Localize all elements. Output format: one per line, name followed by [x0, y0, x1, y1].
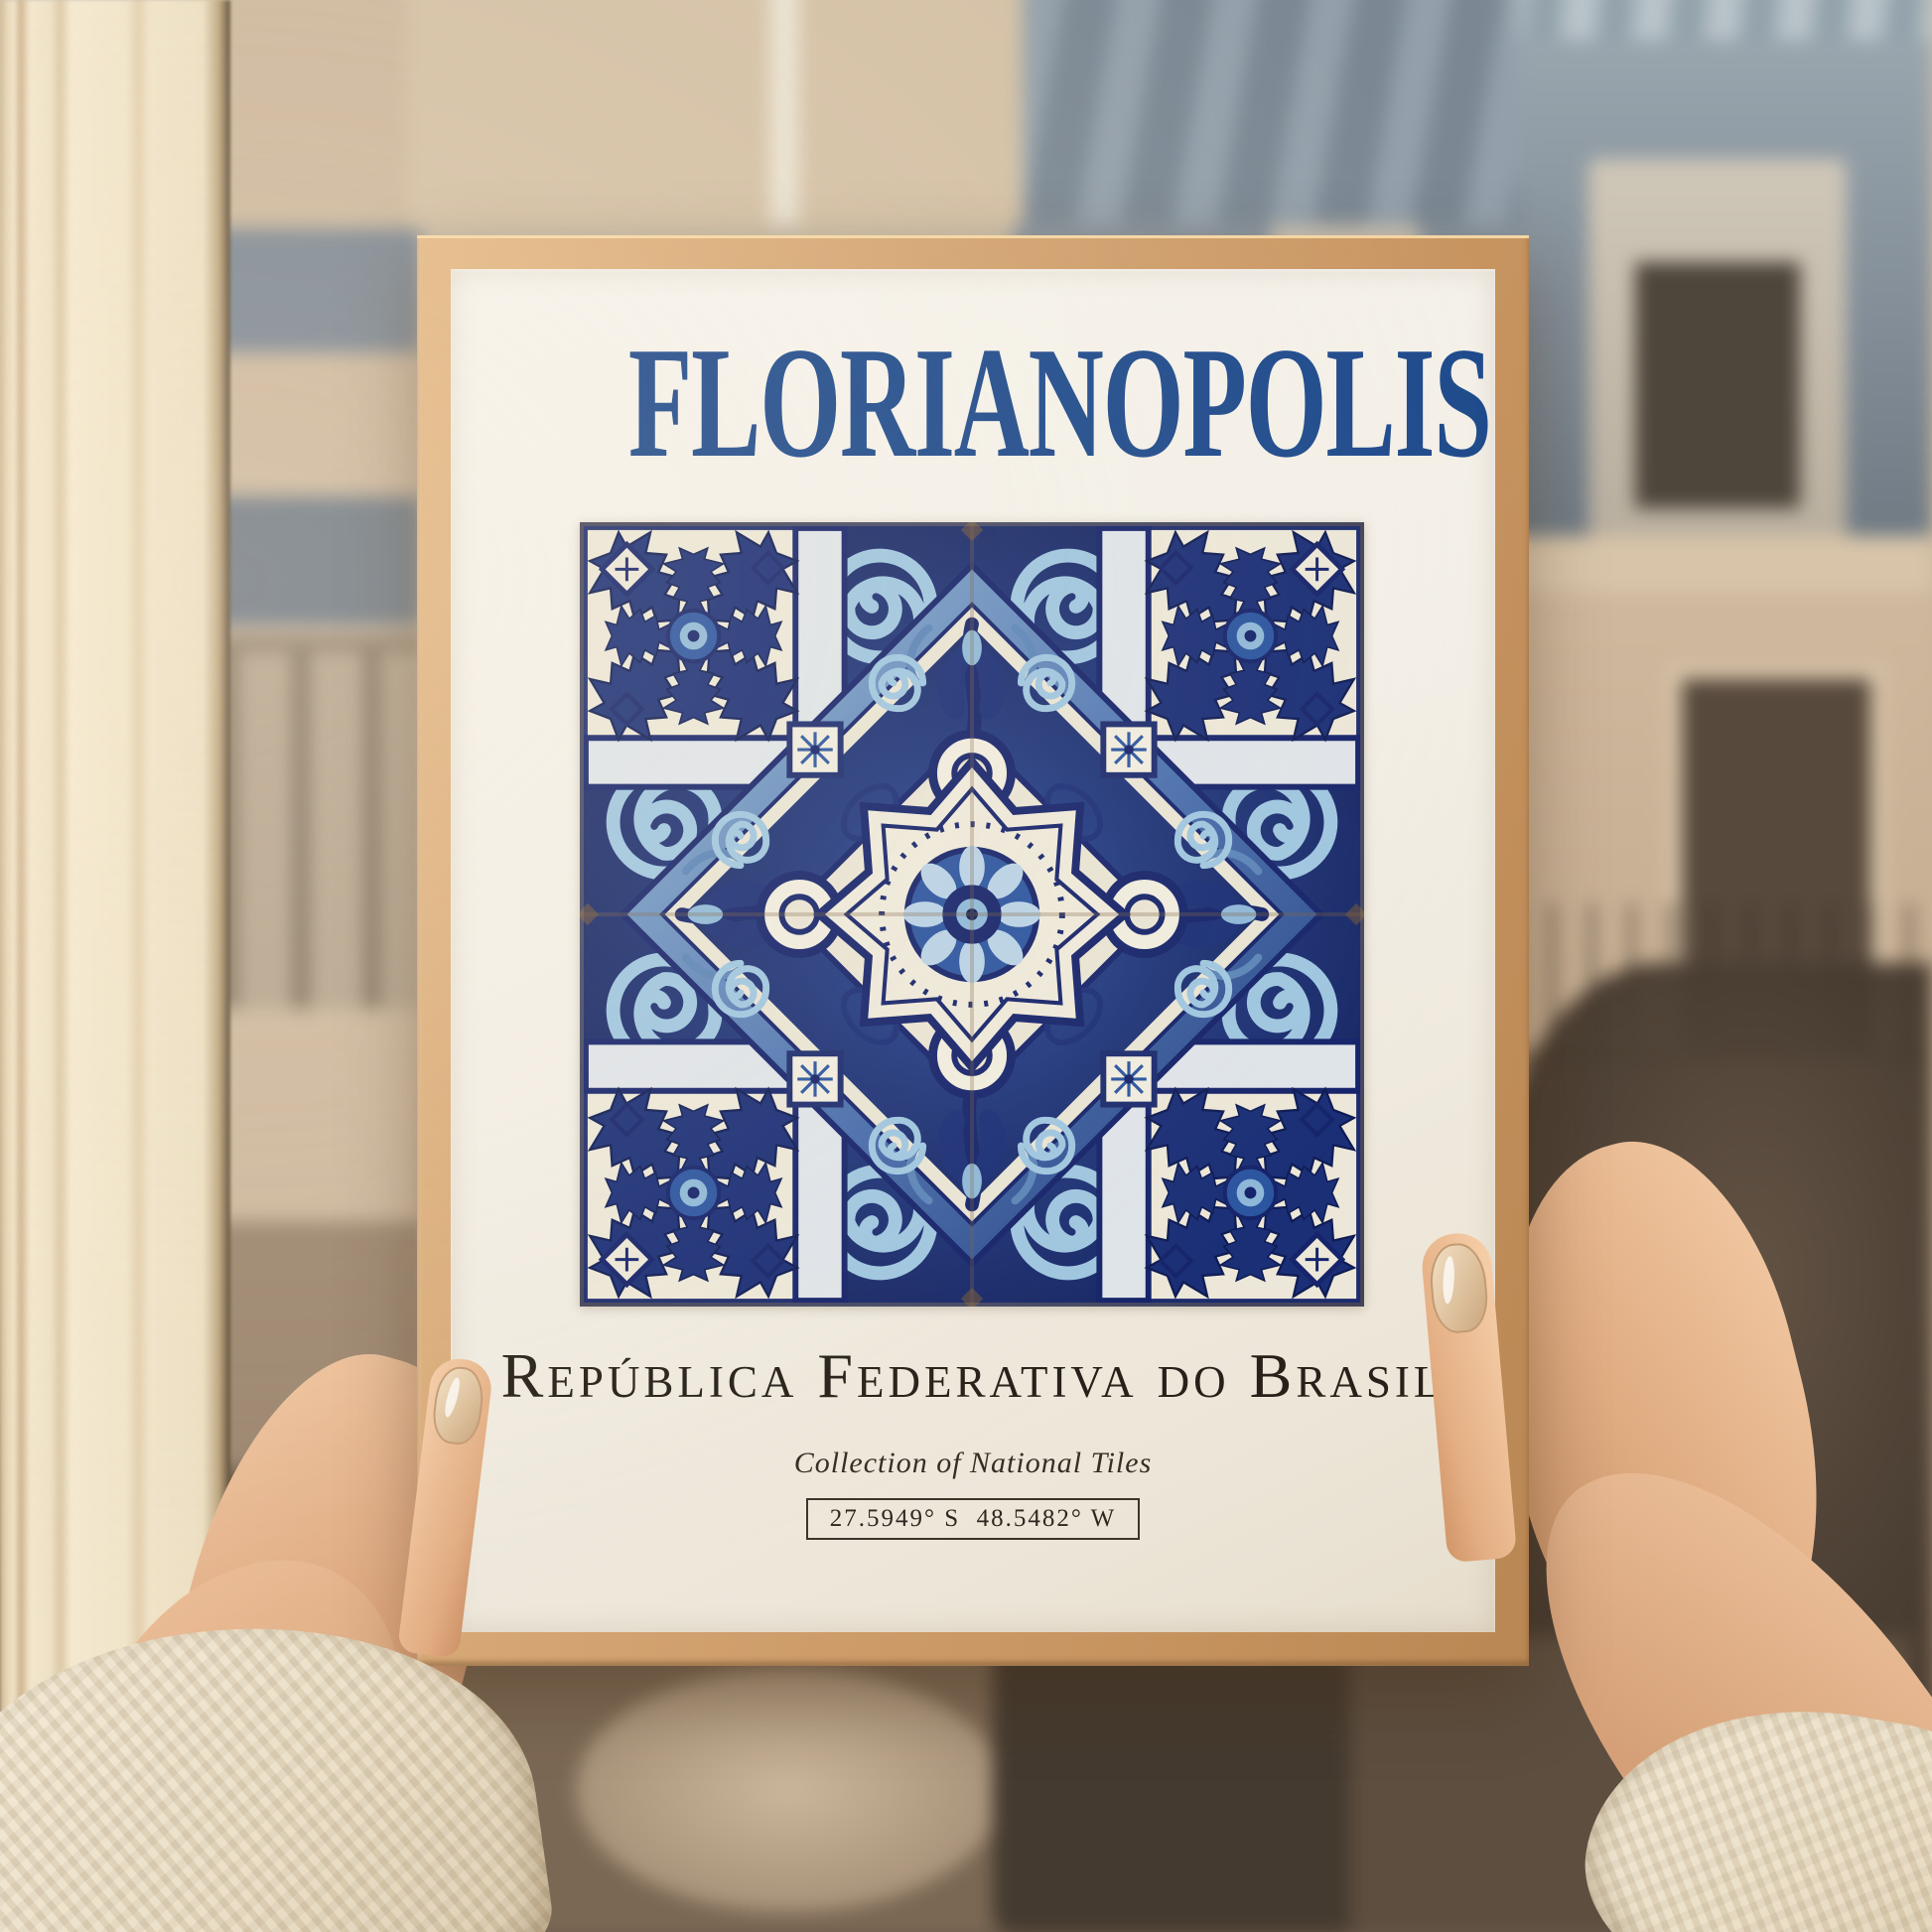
nail-shine [1443, 1256, 1456, 1305]
dormer-window [1588, 159, 1847, 556]
facade-top [407, 0, 1023, 225]
poster-title: FLORIANOPOLIS [628, 323, 1317, 482]
azulejo-tile-artwork [580, 522, 1364, 1307]
coordinates-box: 27.5949° S 48.5482° W [806, 1498, 1141, 1540]
nail-shine [442, 1376, 462, 1419]
right-index-nail [1428, 1241, 1491, 1335]
poster-paper: FLORIANOPOLIS [451, 269, 1495, 1632]
light-pole [769, 0, 799, 225]
dormer-glass [1635, 262, 1800, 508]
poster-frame: FLORIANOPOLIS [417, 235, 1529, 1666]
scene: FLORIANOPOLIS [0, 0, 1932, 1932]
coordinates-wrap: 27.5949° S 48.5482° W [451, 1498, 1495, 1540]
street-dark-patch [993, 1636, 1390, 1932]
country-line: República Federativa do Brasil [451, 1339, 1495, 1413]
collection-line: Collection of National Tiles [451, 1447, 1495, 1480]
left-thumb-nail [430, 1364, 486, 1447]
street-light-patch [576, 1668, 1003, 1912]
slate-roof-top [1023, 0, 1519, 225]
